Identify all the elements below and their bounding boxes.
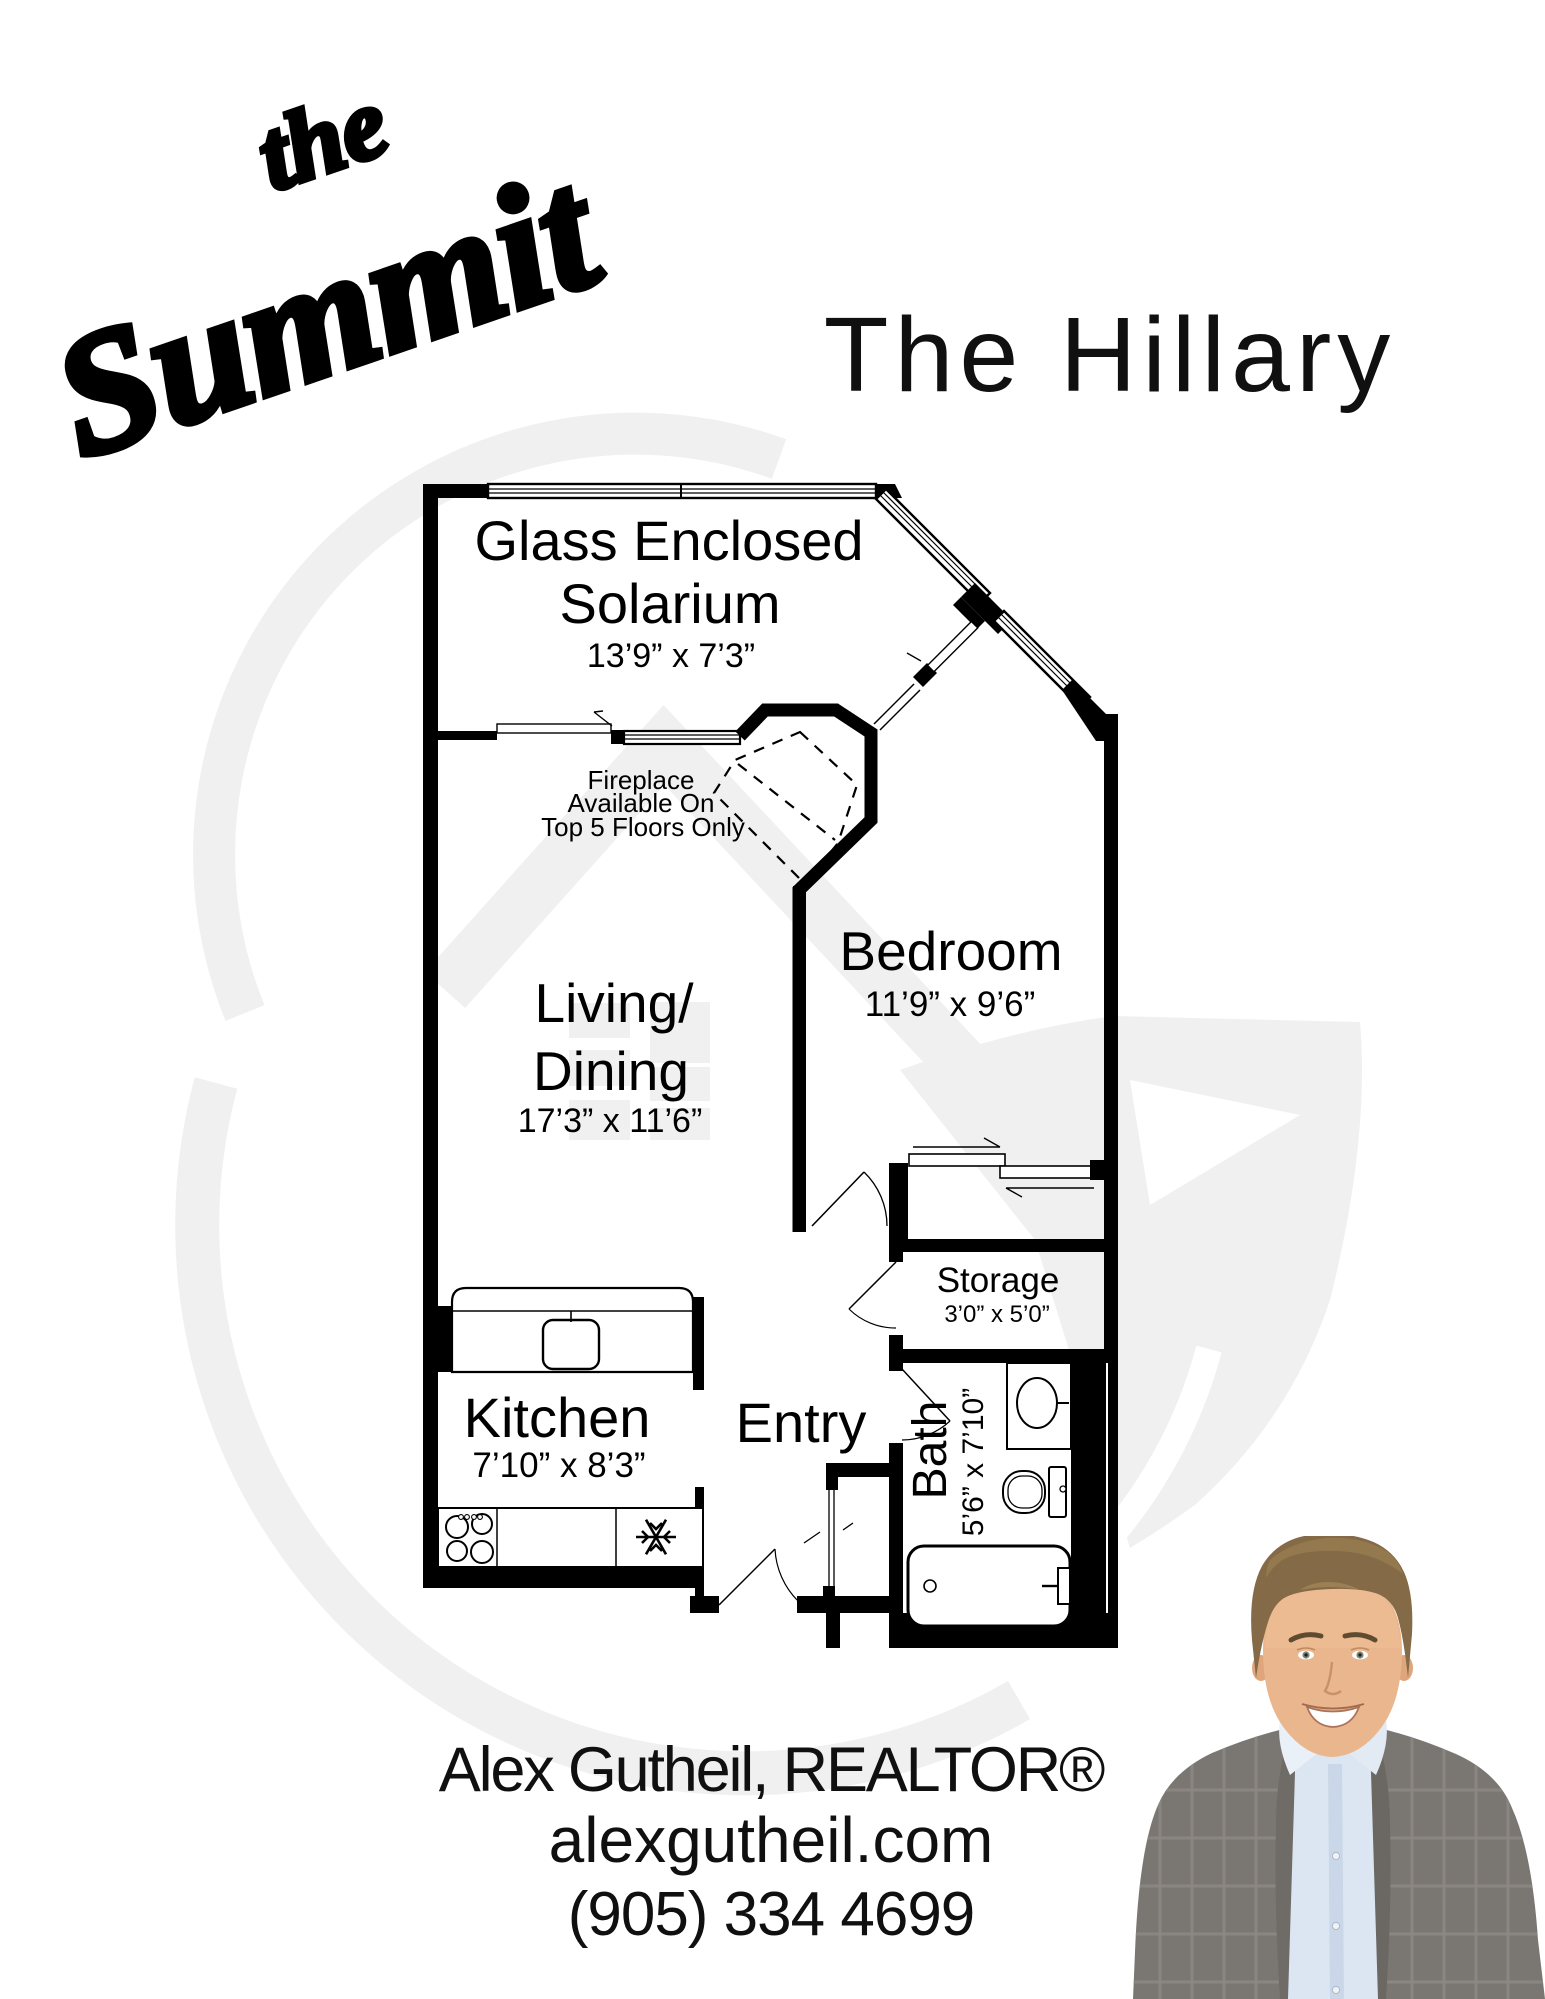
svg-text:Bath: Bath (904, 1401, 957, 1500)
svg-text:Dining: Dining (533, 1040, 689, 1102)
svg-text:(905) 334 4699: (905) 334 4699 (568, 1880, 975, 1949)
svg-text:Alex Gutheil, REALTOR®: Alex Gutheil, REALTOR® (439, 1735, 1105, 1805)
svg-text:Solarium: Solarium (560, 572, 781, 635)
svg-text:Kitchen: Kitchen (464, 1386, 651, 1449)
svg-text:5’6” x 7’10”: 5’6” x 7’10” (957, 1388, 990, 1536)
svg-text:11’9” x 9’6”: 11’9” x 9’6” (865, 985, 1036, 1024)
svg-text:Top 5 Floors Only: Top 5 Floors Only (541, 812, 745, 842)
svg-text:Glass Enclosed: Glass Enclosed (474, 509, 863, 572)
svg-text:Bedroom: Bedroom (839, 920, 1062, 982)
svg-text:The Hillary: The Hillary (824, 296, 1397, 414)
svg-text:3’0” x 5’0”: 3’0” x 5’0” (944, 1301, 1049, 1328)
svg-text:7’10” x 8’3”: 7’10” x 8’3” (472, 1446, 645, 1485)
svg-text:alexgutheil.com: alexgutheil.com (549, 1804, 994, 1876)
svg-text:13’9” x 7’3”: 13’9” x 7’3” (587, 637, 755, 675)
svg-text:Living/: Living/ (535, 972, 695, 1034)
svg-text:17’3” x 11’6”: 17’3” x 11’6” (518, 1102, 703, 1140)
svg-text:Storage: Storage (937, 1261, 1060, 1300)
svg-text:Entry: Entry (736, 1391, 867, 1454)
